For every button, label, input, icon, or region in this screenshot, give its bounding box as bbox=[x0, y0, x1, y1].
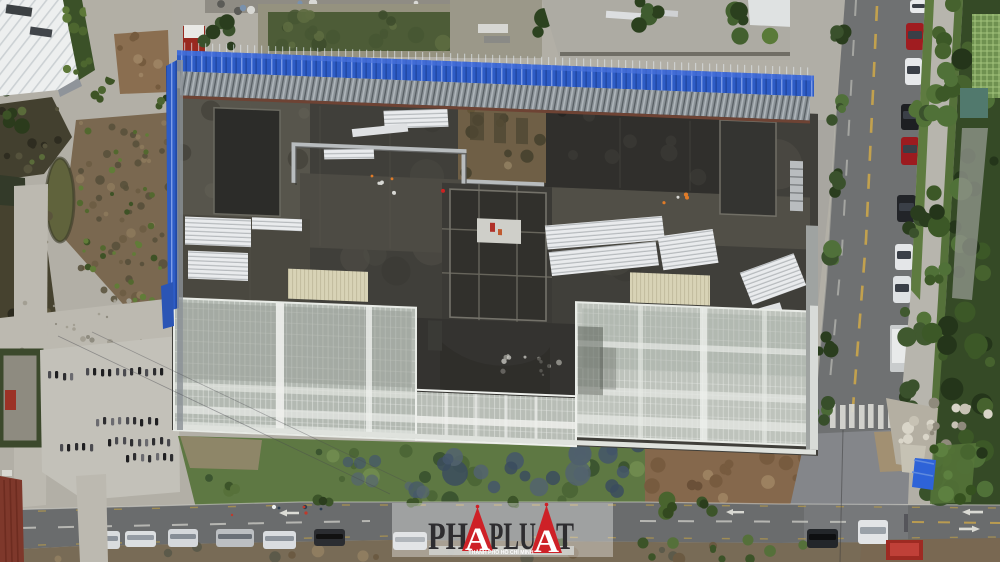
svg-text:A: A bbox=[534, 524, 559, 560]
svg-text:THÀNH PHỐ HỒ CHÍ MINH: THÀNH PHỐ HỒ CHÍ MINH bbox=[468, 548, 533, 556]
svg-text:PH: PH bbox=[428, 515, 468, 558]
